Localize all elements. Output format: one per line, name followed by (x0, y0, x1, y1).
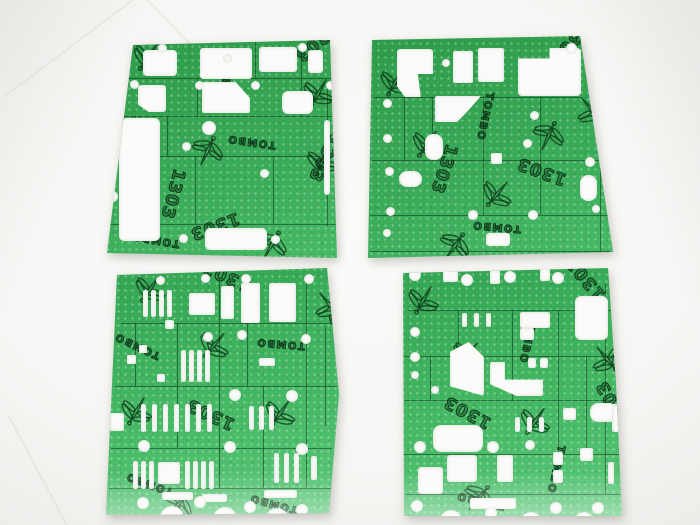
gasket-cutout (182, 142, 191, 151)
gasket-cutout (431, 386, 439, 394)
gasket-cutout (383, 229, 391, 237)
gasket-cutout (158, 44, 167, 53)
gasket-surface: 130313031303TOMBOTOMBO (368, 33, 614, 259)
print-grid-line (370, 215, 608, 216)
gasket-cutout (143, 50, 177, 76)
gasket-cutout (435, 96, 481, 122)
gasket-cutout (468, 210, 478, 220)
gasket-cutout (181, 350, 186, 382)
gasket-cutout (523, 139, 532, 148)
gasket-cutout (298, 43, 307, 52)
photo-scene: 1303130313031303TOMBOTOMBOTOMBO 13031303… (0, 0, 700, 525)
brand-print: TOMBO (113, 330, 162, 361)
gasket-cutout (251, 81, 260, 90)
gasket-sheet-bottom-right: 130313031303TOMBOTOMBOTOMBO (400, 264, 645, 518)
gasket-cutout (525, 440, 535, 450)
print-grid-line (370, 251, 610, 252)
gasket-sheet-top-right: 130313031303TOMBOTOMBO (368, 33, 614, 259)
gasket-cutout (397, 49, 433, 97)
gasket-cutout (249, 406, 254, 430)
gasket-cutout (553, 452, 563, 465)
gasket-cutout (189, 350, 194, 382)
gasket-cutout (260, 169, 269, 178)
print-grid-line (325, 326, 326, 426)
brand-print: TOMBO (226, 133, 276, 151)
part-number-print: 1303 (156, 167, 189, 222)
gasket-cutout (612, 404, 624, 432)
gasket-cutout (409, 269, 421, 281)
gasket-cutout (539, 417, 544, 432)
gasket-cutout (189, 293, 215, 315)
gasket-cutout (119, 118, 160, 241)
gasket-cutout (197, 350, 202, 382)
gasket-cutout (530, 111, 539, 120)
gasket-cutout (540, 268, 550, 281)
gasket-cutout (461, 274, 473, 286)
gasket-cutout (163, 404, 168, 432)
gasket-sheet-top-left: 1303130313031303TOMBOTOMBOTOMBO (105, 36, 340, 259)
gasket-cutout (308, 50, 323, 73)
gasket-cutout (174, 404, 179, 432)
gasket-cutout (491, 153, 502, 164)
gasket-cutout (151, 290, 156, 317)
gasket-cutout (229, 389, 241, 401)
print-grid-line (273, 156, 274, 224)
gasket-cutout (324, 120, 330, 195)
gasket-cutout (486, 313, 491, 327)
gasket-cutout (478, 48, 504, 82)
gasket-cutout (107, 191, 118, 202)
gasket-cutout (490, 270, 500, 284)
gasket-cutout (383, 134, 392, 143)
gasket-cutout (185, 404, 190, 432)
gasket-cutout (152, 404, 157, 432)
gasket-cutout (282, 91, 313, 114)
gasket-cutout (179, 234, 188, 243)
print-grid-line (219, 282, 220, 488)
gasket-cutout (410, 352, 420, 362)
gasket-cutout (130, 80, 139, 89)
highlight-overlay (101, 472, 344, 518)
gasket-cutout (552, 272, 564, 284)
gasket-cutout (269, 406, 274, 430)
gasket-cutout (159, 290, 164, 317)
print-grid-line (115, 386, 337, 387)
gasket-cutout (167, 290, 172, 317)
part-number-print: 1303 (514, 153, 569, 189)
gasket-cutout (165, 320, 174, 329)
gasket-cutout (224, 441, 236, 453)
print-grid-line (600, 103, 601, 251)
gasket-cutout (528, 358, 536, 368)
gasket-cutout (566, 43, 577, 54)
gasket-surface: 130313031303TOMBOTOMBOTOMBOTOMBO (101, 266, 344, 518)
gasket-cutout (259, 406, 264, 430)
gasket-cutout (385, 167, 394, 176)
gasket-cutout (518, 48, 581, 96)
gasket-cutout (563, 408, 576, 420)
gasket-cutout (520, 328, 534, 340)
gasket-cutout (386, 207, 395, 216)
print-grid-line (121, 323, 335, 324)
gasket-cutout (141, 404, 146, 432)
gasket-cutout (580, 448, 593, 461)
gasket-cutout (200, 48, 252, 79)
brand-print: TOMBO (256, 336, 306, 351)
gasket-cutout (528, 210, 538, 220)
gasket-cutout (157, 374, 165, 382)
gasket-cutout (110, 413, 124, 431)
highlight-overlay (400, 472, 645, 518)
gasket-cutout (259, 358, 275, 366)
gasket-cutout (271, 235, 280, 244)
print-grid-line (113, 116, 337, 117)
gasket-cutout (486, 233, 510, 246)
gasket-cutout (443, 268, 458, 282)
gasket-cutout (205, 350, 210, 382)
gasket-cutout (414, 441, 426, 453)
gasket-cutout (156, 276, 165, 285)
gasket-cutout (127, 355, 136, 364)
backdrop-crease (8, 415, 71, 525)
gasket-cutout (241, 283, 260, 323)
gasket-cutout (580, 175, 597, 201)
print-grid-line (372, 160, 606, 161)
gasket-cutout (138, 440, 150, 452)
gasket-cutout (205, 228, 267, 250)
print-grid-line (167, 116, 168, 156)
gasket-cutout (138, 85, 166, 112)
gasket-cutout (399, 171, 422, 187)
gasket-surface: 1303130313031303TOMBOTOMBOTOMBO (105, 36, 340, 259)
gasket-cutout (202, 82, 250, 113)
print-grid-line (430, 356, 431, 400)
gasket-cutout (221, 286, 234, 319)
gasket-cutout (237, 330, 247, 340)
print-grid-line (247, 323, 248, 386)
gasket-cutout (410, 327, 420, 337)
gasket-cutout (592, 205, 600, 213)
print-grid-line (255, 41, 256, 78)
gasket-sheet-bottom-left: 130313031303TOMBOTOMBOTOMBOTOMBO (101, 266, 344, 518)
gasket-cutout (139, 345, 147, 353)
gasket-cutout (433, 425, 483, 452)
gasket-cutout (585, 157, 595, 167)
brand-print: TOMBO (472, 219, 522, 234)
gasket-cutout (442, 59, 450, 67)
gasket-cutout (223, 54, 232, 63)
gasket-cutout (411, 371, 419, 379)
gasket-cutout (196, 404, 201, 432)
gasket-cutout (286, 390, 298, 402)
gasket-cutout (474, 313, 479, 327)
gasket-cutout (453, 51, 473, 83)
gasket-cutout (202, 121, 216, 135)
gasket-cutout (326, 81, 335, 90)
gasket-cutout (201, 274, 210, 283)
dragonfly-logo-icon (296, 133, 349, 186)
gasket-cutout (487, 441, 499, 453)
gasket-cutout (425, 134, 443, 160)
gasket-cutout (383, 99, 392, 108)
gasket-cutout (259, 47, 297, 72)
gasket-cutout (462, 313, 467, 327)
gasket-cutout (575, 296, 608, 340)
dragonfly-logo-icon (187, 316, 243, 372)
gasket-cutout (520, 312, 550, 328)
gasket-surface: 130313031303TOMBOTOMBOTOMBO (400, 264, 645, 518)
gasket-cutout (504, 271, 516, 283)
print-grid-line (558, 310, 559, 454)
gasket-cutout (515, 417, 520, 432)
gasket-cutout (203, 332, 213, 342)
gasket-cutout (540, 358, 548, 368)
print-grid-line (586, 356, 587, 454)
gasket-cutout (143, 290, 148, 317)
gasket-cutout (304, 274, 314, 284)
gasket-cutout (207, 404, 212, 432)
gasket-cutout (301, 334, 311, 344)
gasket-cutout (527, 417, 532, 432)
gasket-cutout (269, 283, 296, 322)
